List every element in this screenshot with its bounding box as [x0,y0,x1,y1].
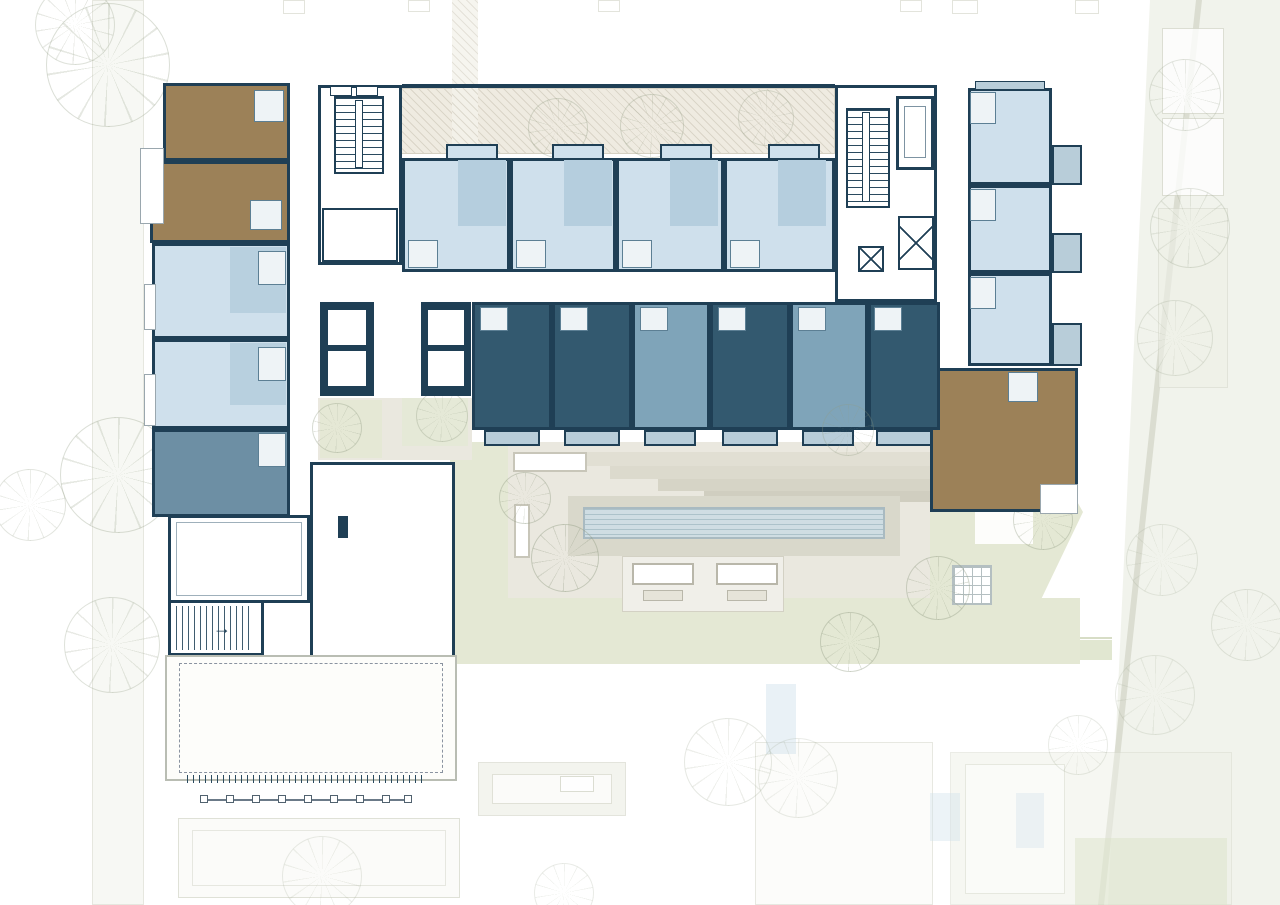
railing-post [382,795,390,803]
courtyard-tree [499,472,551,524]
sofa-set [716,563,778,585]
bath-pod [250,200,282,230]
shaft-vent [330,86,352,96]
lobby-room-inset [176,522,302,596]
floor-plan-canvas: → [0,0,1280,905]
balcony-bump [446,144,498,160]
bath-pod [516,240,546,268]
bath-pod [730,240,760,268]
bench [643,590,683,601]
balcony-bump [660,144,712,160]
bath-pod [258,347,286,381]
site-mark [952,0,978,14]
site-mark [283,0,305,14]
bath-pod [258,433,286,467]
site-tree [1149,59,1221,131]
elevator-cab [904,106,926,158]
railing-post [356,795,364,803]
lap-pool [583,507,885,539]
unit-room-panel [778,160,826,226]
unit-room-panel [564,160,612,226]
balcony-south [644,430,696,446]
bath-pod [798,307,826,331]
bath-pod [408,240,438,268]
railing-post [404,795,412,803]
bath-pod [622,240,652,268]
elevator-cab [327,350,367,387]
site-mark [900,0,922,12]
bath-pod [718,307,746,331]
bath-pod [1008,372,1038,402]
ground-plan-chip [560,776,594,792]
bath-pod [258,251,286,285]
bath-pod [970,277,996,309]
ground-plan-faint-inner [492,774,612,804]
railing-post [226,795,234,803]
terrace-notch [1040,484,1078,514]
courtyard-tree [820,612,880,672]
bath-pod [874,307,902,331]
stair-stringer [355,100,363,168]
balcony-recess [144,284,156,330]
roof-terrace-dashed-edge [179,663,443,773]
site-mark [598,0,620,12]
site-tree [534,863,594,905]
bench [727,590,767,601]
balcony-east [1052,323,1082,366]
site-tree [1211,589,1280,661]
site-tree [1115,655,1195,735]
service-shaft [898,216,934,270]
bath-pod [640,307,668,331]
railing-post [304,795,312,803]
core-room [322,208,398,262]
wall-chip [338,516,348,538]
planter-box [513,452,587,472]
balcony-east [1052,145,1082,185]
stair-stringer [862,112,870,202]
ground-plan-green [1075,838,1227,905]
terrace-parapet-hatch [187,775,423,783]
planter-tree-over-units [822,404,874,456]
site-mark [1075,0,1099,14]
service-shaft [858,246,884,272]
balcony-east [1052,233,1082,273]
balcony-south [876,430,932,446]
site-tree [684,718,772,806]
courtyard-tree [312,403,362,453]
unit-room-panel [670,160,718,226]
shaft-vent [356,86,378,96]
north-wing-top-wall [402,84,835,88]
elevator-cab [427,350,465,387]
balcony-south [484,430,540,446]
site-tree [64,597,160,693]
bath-pod [560,307,588,331]
balcony-south [564,430,620,446]
courtyard-tree [531,524,599,592]
elevator-cab [327,309,367,346]
railing-post [252,795,260,803]
bath-pod [970,189,996,221]
balcony-south [722,430,778,446]
site-mark [408,0,430,12]
balcony-north [975,81,1045,90]
courtyard-tree [416,390,468,442]
site-tree [758,738,838,818]
railing-post [200,795,208,803]
sofa-set [632,563,694,585]
ground-plan-faint-inner [965,764,1065,894]
site-tree [1126,524,1198,596]
balcony-bump [768,144,820,160]
site-tree [1048,715,1108,775]
balcony-bump [552,144,604,160]
ground-plan-blue-chip [1016,793,1044,848]
site-tree [1137,300,1213,376]
north-terrace-walk [452,0,478,88]
stair-direction-arrow: → [200,616,244,640]
terrace-tree [738,90,794,146]
balcony-recess [140,148,164,224]
bath-pod [254,90,284,122]
bath-pod [480,307,508,331]
unit-room-panel [458,160,506,226]
railing-post [278,795,286,803]
courtyard-lawn-west [450,442,508,664]
courtyard-tree [906,556,970,620]
elevator-cab [427,309,465,346]
ground-plan-blue-chip [930,793,960,841]
site-tree [1150,188,1230,268]
balcony-recess [144,374,156,426]
bath-pod [970,92,996,124]
railing-post [330,795,338,803]
amenity-room [310,462,455,658]
site-tree [0,469,66,541]
